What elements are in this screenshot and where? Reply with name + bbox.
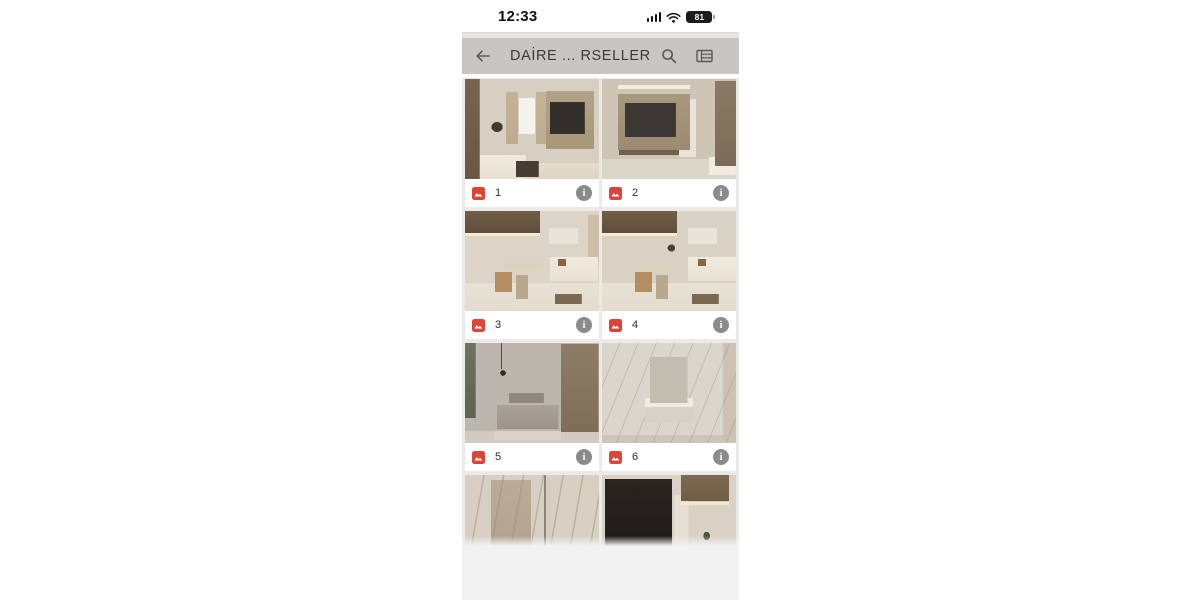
card-footer: 3 i [465,311,599,339]
header-actions [651,44,739,68]
list-view-icon[interactable] [687,44,723,68]
file-grid: 1 i 2 i 3 i [462,78,739,600]
card-footer: 4 i [602,311,736,339]
info-icon[interactable]: i [576,449,592,465]
battery-icon: 81 [686,11,715,23]
file-card-6[interactable]: 6 i [602,343,736,471]
folder-title: DAİRE ... RSELLER [510,48,651,64]
image-file-icon [609,451,622,464]
file-card-4[interactable]: 4 i [602,211,736,339]
image-file-icon [472,319,485,332]
clock: 12:33 [498,8,537,25]
card-footer: 6 i [602,443,736,471]
card-footer: 1 i [465,179,599,207]
file-name: 6 [632,451,638,463]
image-file-icon [609,187,622,200]
thumbnail-tv-wall [602,79,736,179]
info-icon[interactable]: i [713,449,729,465]
image-file-icon [472,187,485,200]
status-icons: 81 [647,11,715,23]
browser-toolbar-zone: drive.google.com [462,536,739,600]
battery-percent: 81 [686,11,712,23]
info-icon[interactable]: i [576,317,592,333]
back-button[interactable] [474,46,491,66]
file-card-2[interactable]: 2 i [602,79,736,207]
file-name: 1 [495,187,501,199]
file-name: 2 [632,187,638,199]
thumbnail-kitchen-living-2 [602,211,736,311]
thumbnail-bedroom [465,343,599,443]
file-card-5[interactable]: 5 i [465,343,599,471]
file-name: 5 [495,451,501,463]
overflow-menu-icon[interactable] [723,44,739,68]
cellular-signal-icon [647,12,662,22]
thumbnail-kitchen-living [465,211,599,311]
phone-screenshot: 12:33 81 DAİRE ... RSELLER [462,0,739,600]
info-icon[interactable]: i [713,185,729,201]
file-name: 3 [495,319,501,331]
search-icon[interactable] [651,44,687,68]
info-icon[interactable]: i [576,185,592,201]
info-icon[interactable]: i [713,317,729,333]
card-footer: 5 i [465,443,599,471]
thumbnail-living-room [465,79,599,179]
image-file-icon [472,451,485,464]
thumbnail-bathroom [602,343,736,443]
app-header: DAİRE ... RSELLER [462,38,739,74]
wifi-icon [666,12,681,23]
file-name: 4 [632,319,638,331]
image-file-icon [609,319,622,332]
status-bar: 12:33 81 [462,0,739,32]
card-footer: 2 i [602,179,736,207]
file-card-1[interactable]: 1 i [465,79,599,207]
file-card-3[interactable]: 3 i [465,211,599,339]
